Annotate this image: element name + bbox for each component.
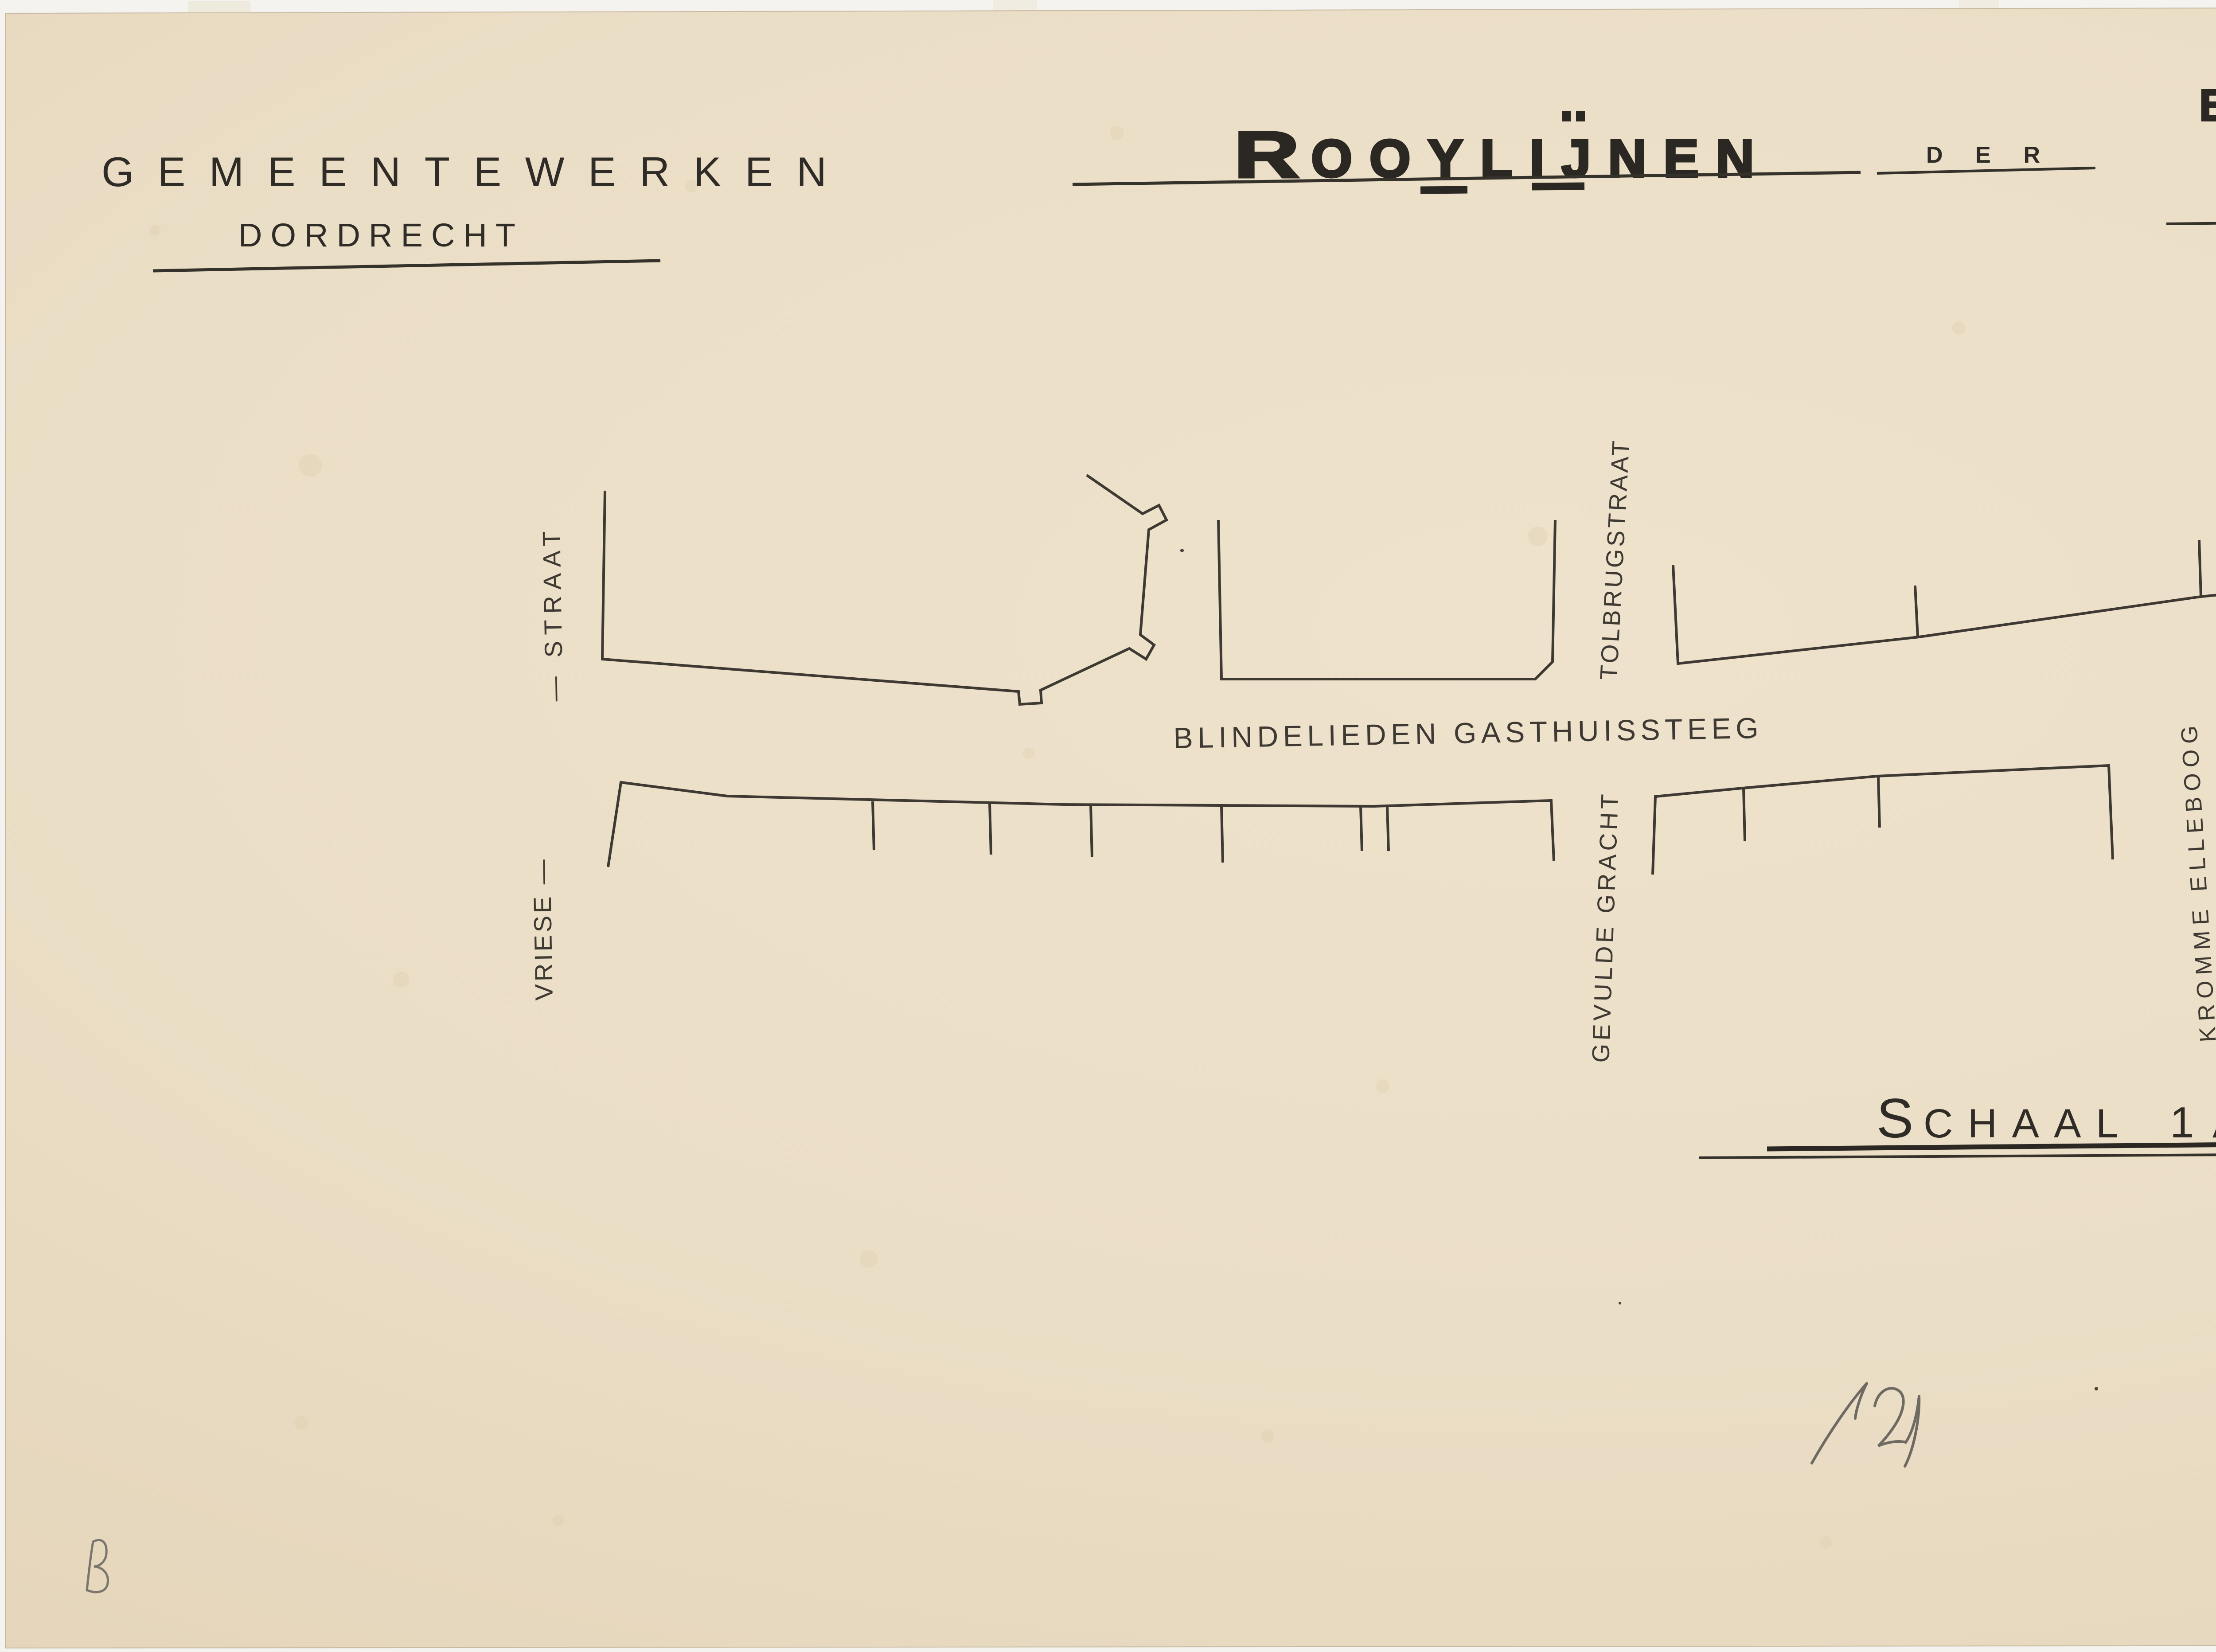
svg-text:S: S (1877, 1088, 1913, 1149)
svg-text:1: 1 (2170, 1098, 2194, 1147)
svg-text:DORDRECHT: DORDRECHT (238, 217, 515, 254)
svg-text:VRIESE —: VRIESE — (527, 859, 558, 1001)
svg-text:BLINDELIEDEN GASTHUISSTEEG: BLINDELIEDEN GASTHUISSTEEG (2199, 81, 2216, 130)
svg-text:A: A (2212, 1097, 2216, 1147)
